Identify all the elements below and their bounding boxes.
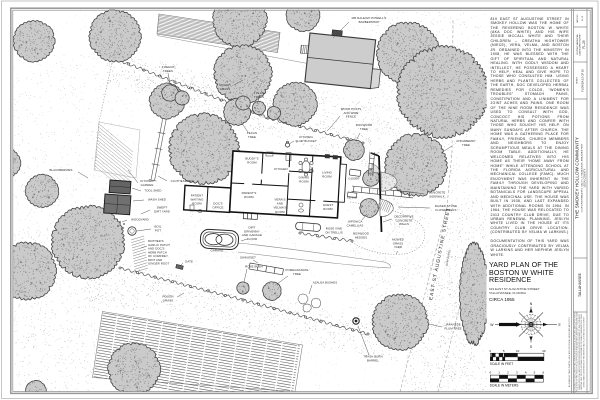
svg-text:THE SMOKEY HOLLOW COMMUNITY: THE SMOKEY HOLLOW COMMUNITY [574,137,579,219]
svg-text:FLOOR: FLOOR [247,237,257,241]
svg-text:BARBERSHOP: BARBERSHOP [359,20,380,24]
svg-text:TREE: TREE [248,135,256,139]
svg-text:HEDGES: HEDGES [355,235,368,239]
svg-text:SWING: SWING [347,196,357,200]
svg-text:GLIDER: GLIDER [348,177,359,181]
svg-text:AS DRAWN BY DAVID DRAPER, HALS: AS DRAWN BY DAVID DRAPER, HALS, AND HIST… [568,316,571,387]
svg-text:GARAGE: GARAGE [211,249,224,253]
svg-text:TOOL SHED: TOOL SHED [144,189,161,193]
svg-text:SWINGSET: SWINGSET [240,256,256,260]
svg-text:OFFICE: OFFICE [212,206,223,210]
svg-text:FENCE: FENCE [346,115,356,119]
svg-text:TREES: TREES [254,95,264,99]
svg-text:ROOM: ROOM [244,195,254,199]
svg-text:POT: POT [155,228,161,232]
svg-text:TREE: TREE [293,272,301,276]
svg-text:FL-29: FL-29 [582,16,584,21]
svg-text:HISTORIC AMERICAN: HISTORIC AMERICAN [576,34,579,55]
svg-text:BARREL: BARREL [367,358,379,362]
svg-text:TREE: TREE [360,127,368,131]
svg-text:CLOTHESLINES: CLOTHESLINES [171,179,194,183]
svg-text:ROOM: ROOM [192,202,202,206]
svg-text:TREES: TREES [163,69,173,73]
svg-text:UNITED STATES DEPARTMENT OF TH: UNITED STATES DEPARTMENT OF THE INTERIOR… [583,316,586,388]
svg-text:KITCHEN: KITCHEN [274,167,287,171]
svg-text:AZALEA BUSHES: AZALEA BUSHES [313,281,338,285]
svg-text:CAMELLIAS: CAMELLIAS [347,223,364,227]
svg-text:BLACKBERRIES: BLACKBERRIES [49,168,72,172]
svg-text:GRASS: GRASS [163,298,173,302]
svg-text:HALS NO.: HALS NO. [576,14,579,23]
svg-text:WOODYARD: WOODYARD [131,218,149,222]
svg-text:PLUM TREE: PLUM TREE [444,326,461,330]
svg-text:FLORIDA 12 OF 16: FLORIDA 12 OF 16 [581,69,585,92]
svg-text:WALLS: WALLS [399,222,409,226]
svg-text:ROSE BUSH: ROSE BUSH [245,265,263,269]
svg-text:20: 20 [542,349,546,353]
svg-text:SLOP BUCKET: SLOP BUCKET [296,139,317,143]
svg-text:TREE: TREE [462,143,470,147]
svg-text:SIDEWALK: SIDEWALK [429,194,444,198]
svg-text:ROOM: ROOM [299,180,309,184]
svg-text:TALLAHASSEE: TALLAHASSEE [578,272,582,297]
svg-text:ROOM: ROOM [322,175,332,179]
svg-text:GRASS: GRASS [220,87,230,91]
svg-text:WASH SHED: WASH SHED [148,198,166,202]
svg-text:YARD: YARD [394,245,402,249]
svg-text:GATE: GATE [185,260,193,264]
svg-text:SCALE IN FEET: SCALE IN FEET [490,362,514,366]
svg-text:GINGER ROOT: GINGER ROOT [148,262,169,266]
svg-text:10: 10 [516,349,520,353]
svg-text:ROOM: ROOM [275,210,285,214]
svg-text:SCALE IN METERS: SCALE IN METERS [490,384,519,388]
svg-text:GARDEN: GARDEN [141,183,154,187]
svg-text:LEON COUNTY: LEON COUNTY [583,168,587,187]
svg-text:ON TRELLIS: ON TRELLIS [325,230,343,234]
svg-text:FL-29: FL-29 [582,40,586,49]
svg-text:ROOM: ROOM [247,161,257,165]
svg-text:DIRT YARD: DIRT YARD [154,209,170,213]
svg-text:ROOM: ROOM [323,207,333,211]
svg-text:SHEET: SHEET [577,76,579,83]
